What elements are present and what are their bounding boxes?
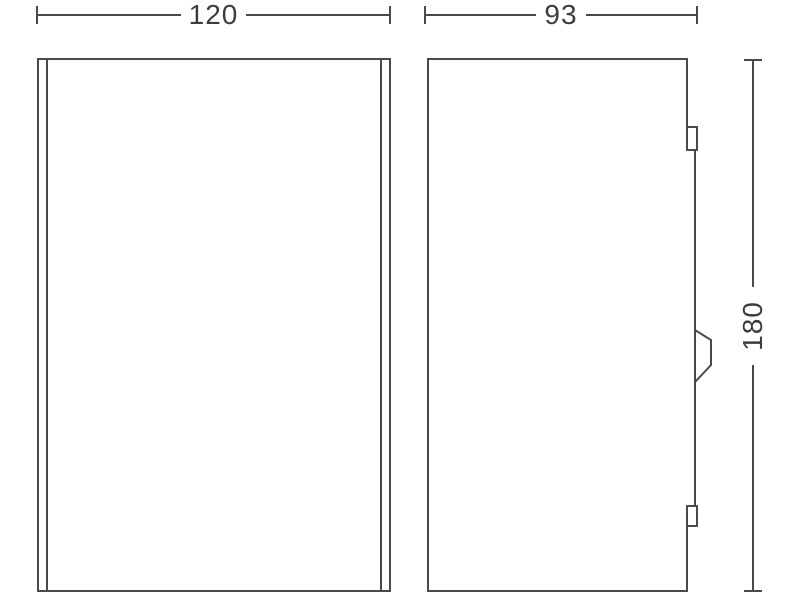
dimension-line-segment xyxy=(38,14,181,16)
dimension-tick xyxy=(696,6,698,24)
side-view-outline xyxy=(427,58,688,592)
front-view-left-edge-line xyxy=(46,60,48,590)
depth-dimension-label: 93 xyxy=(536,1,585,29)
front-view-outline xyxy=(37,58,391,592)
dimension-tick xyxy=(744,590,762,592)
width-dimension-label: 120 xyxy=(181,1,247,29)
dimension-line-segment xyxy=(752,365,754,591)
height-dimension-label-wrap: 180 xyxy=(744,287,762,365)
width-dimension: 120 xyxy=(36,6,391,24)
dimension-drawing: 120 93 180 xyxy=(0,0,800,600)
dimension-line-segment xyxy=(752,61,754,287)
depth-dimension: 93 xyxy=(424,6,698,24)
mount-clip-bottom xyxy=(686,505,698,527)
dimension-tick xyxy=(389,6,391,24)
height-dimension-label: 180 xyxy=(739,301,767,351)
height-dimension: 180 xyxy=(744,59,762,592)
mount-clip-top xyxy=(686,126,698,151)
cable-gland-bump xyxy=(694,329,714,383)
front-view-right-edge-line xyxy=(380,60,382,590)
dimension-line-segment xyxy=(246,14,389,16)
dimension-line-segment xyxy=(426,14,536,16)
dimension-line-segment xyxy=(586,14,696,16)
